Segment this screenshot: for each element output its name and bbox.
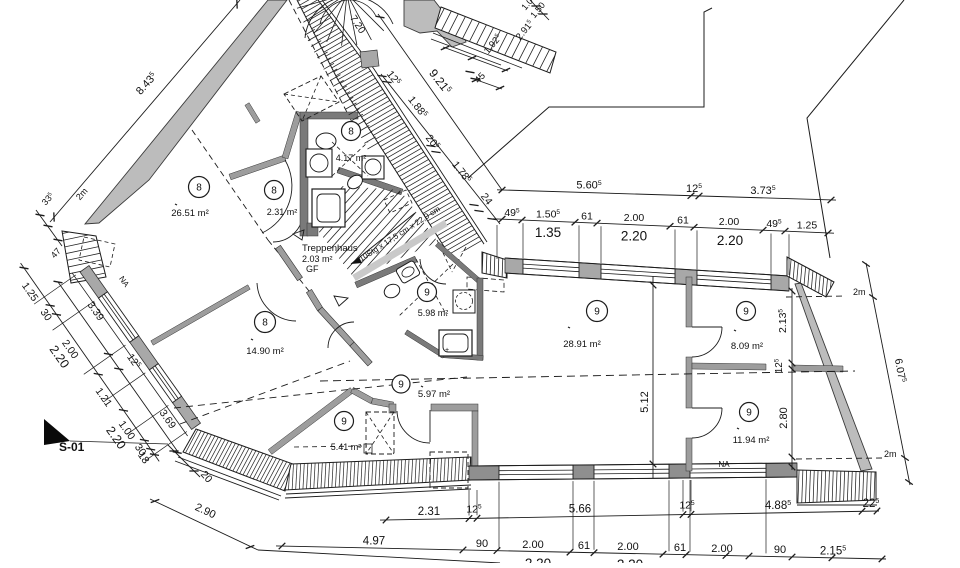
svg-text:9: 9: [746, 408, 752, 419]
svg-text:61: 61: [677, 214, 689, 226]
svg-text:2.31: 2.31: [418, 506, 440, 518]
svg-text:4.97: 4.97: [363, 536, 385, 548]
svg-text:61: 61: [581, 210, 593, 222]
svg-text:90: 90: [774, 544, 786, 556]
svg-text:61: 61: [578, 540, 590, 552]
svg-text:26.51 m²: 26.51 m²: [171, 208, 209, 219]
svg-text:8: 8: [262, 318, 268, 329]
svg-text:9: 9: [743, 307, 749, 318]
svg-text:2.20: 2.20: [717, 233, 743, 248]
svg-text:11.94 m²: 11.94 m²: [733, 435, 770, 446]
svg-text:2.00: 2.00: [522, 539, 543, 551]
svg-text:NA: NA: [718, 460, 730, 469]
svg-text:5.97 m²: 5.97 m²: [418, 389, 450, 400]
svg-text:9: 9: [424, 288, 430, 299]
svg-text:90: 90: [476, 538, 488, 550]
svg-text:9: 9: [398, 380, 404, 391]
svg-text:GF: GF: [306, 264, 319, 274]
svg-text:5.12: 5.12: [639, 391, 651, 412]
svg-text:1.35: 1.35: [535, 225, 561, 240]
svg-text:8: 8: [271, 186, 277, 197]
svg-text:Treppenhaus: Treppenhaus: [302, 243, 358, 254]
svg-text:2.00: 2.00: [624, 212, 645, 224]
svg-text:8: 8: [196, 183, 202, 194]
svg-text:8: 8: [348, 127, 354, 138]
svg-text:2.20: 2.20: [525, 556, 551, 563]
svg-text:+: +: [445, 347, 449, 354]
svg-text:2.20: 2.20: [617, 557, 643, 563]
svg-text:5.98 m²: 5.98 m²: [418, 308, 449, 318]
svg-text:2.31 m²: 2.31 m²: [267, 207, 298, 217]
svg-text:S-01: S-01: [59, 440, 85, 454]
svg-text:28.91 m²: 28.91 m²: [563, 339, 601, 350]
svg-text:4.17 m²: 4.17 m²: [336, 153, 367, 163]
svg-text:9: 9: [594, 307, 600, 318]
svg-text:2m: 2m: [853, 287, 866, 297]
svg-text:1.25: 1.25: [797, 220, 818, 232]
svg-text:2.00: 2.00: [719, 216, 740, 228]
svg-text:2m: 2m: [884, 449, 897, 459]
svg-text:2.80: 2.80: [778, 407, 790, 428]
svg-text:5.66: 5.66: [569, 503, 591, 515]
svg-text:2.20: 2.20: [621, 229, 647, 244]
svg-text:2.03 m²: 2.03 m²: [302, 254, 333, 264]
svg-text:14.90 m²: 14.90 m²: [246, 346, 284, 357]
svg-text:8.09 m²: 8.09 m²: [731, 341, 763, 352]
svg-text:61: 61: [674, 542, 686, 554]
svg-text:2.00: 2.00: [711, 543, 732, 555]
svg-text:5.41 m²: 5.41 m²: [331, 442, 362, 452]
svg-text:2.00: 2.00: [617, 541, 638, 553]
svg-text:9: 9: [341, 417, 347, 428]
